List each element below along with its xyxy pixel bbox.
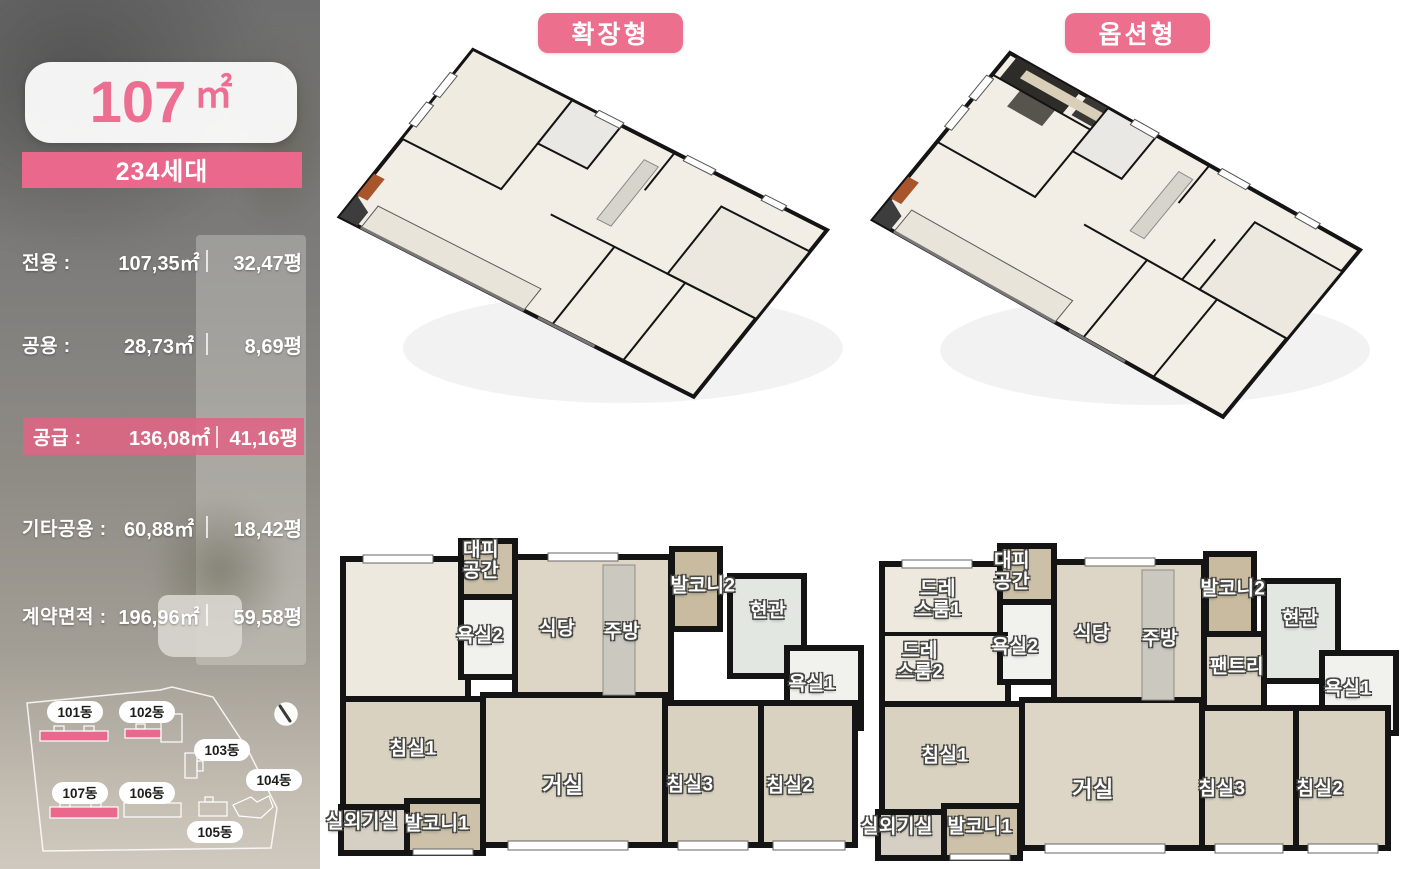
window: [950, 854, 1010, 860]
floorplan-option-3d: [865, 45, 1404, 445]
building-105: [199, 797, 227, 816]
spec-sqm: 60,88㎡: [118, 513, 200, 542]
window: [363, 555, 433, 563]
spec-pyeong: 18,42평: [214, 513, 308, 542]
page: 107 ㎡ 234세대 전용 : 107,35㎡ 32,47평 공용 : 28,…: [0, 0, 1404, 869]
room-label-kitchen: 주방: [1142, 630, 1178, 651]
room-upper-left: [343, 559, 468, 699]
room-label-entry: 현관: [750, 602, 786, 623]
divider: [206, 333, 208, 355]
room-label-bed3: 침실3: [1198, 780, 1245, 801]
floorplan-option-2d: 드레 스룸1 대피 공간 발코니2 현관 드레 스룸2 욕실2 식당 주방 팬트…: [860, 538, 1404, 863]
sidebar: 107 ㎡ 234세대 전용 : 107,35㎡ 32,47평 공용 : 28,…: [0, 0, 320, 869]
room-label-dining: 식당: [1074, 625, 1110, 646]
building-107: [50, 802, 118, 818]
svg-text:105동: 105동: [198, 825, 233, 840]
spec-row-common: 공용 : 28,73㎡ 8,69평: [12, 325, 308, 363]
building-label-101: 101동: [47, 701, 103, 723]
window: [902, 560, 972, 568]
area-title-card: 107 ㎡: [25, 62, 297, 143]
window: [1308, 844, 1378, 853]
spec-row-other-common: 기타공용 : 60,88㎡ 18,42평: [12, 508, 308, 546]
room-label-bed3: 침실3: [666, 776, 713, 797]
spec-row-supply: 공급 : 136,08㎡ 41,16평: [23, 418, 304, 455]
floorplan-extended-2d: 대피 공간 발코니2 현관 욕실2 식당 주방 욕실1 침실1 거실 침실3 침…: [333, 535, 870, 860]
room-label-bed2: 침실2: [1296, 780, 1343, 801]
room-label-balcony1: 발코니1: [404, 815, 469, 836]
room-label-bath1: 욕실1: [1324, 680, 1371, 701]
spec-row-contract-area: 계약면적 : 196,96㎡ 59,58평: [12, 596, 308, 634]
room-label-entry: 현관: [1282, 610, 1318, 631]
room-label-escape: 대피 공간: [454, 540, 508, 581]
room-label-bath2: 욕실2: [456, 627, 503, 648]
divider: [206, 516, 208, 538]
window: [548, 553, 618, 561]
room-label-escape: 대피 공간: [985, 551, 1039, 592]
compass-icon: [275, 703, 297, 725]
room-living: [1022, 700, 1202, 848]
room-label-balcony1: 발코니1: [947, 818, 1012, 839]
area-number: 107: [90, 74, 187, 132]
window: [1215, 844, 1283, 853]
svg-text:102동: 102동: [130, 705, 165, 720]
divider: [206, 250, 208, 272]
floorplan-extended-3d: [333, 38, 873, 443]
spec-label: 전용 :: [12, 248, 118, 275]
room-label-kitchen: 주방: [604, 623, 640, 644]
room-label-dining: 식당: [539, 620, 575, 641]
building-101: [40, 726, 108, 741]
spec-label: 기타공용 :: [12, 514, 118, 541]
divider: [216, 426, 218, 448]
room-label-balcony2: 발코니2: [670, 577, 735, 598]
spec-pyeong: 59,58평: [214, 601, 308, 630]
spec-sqm: 28,73㎡: [118, 330, 200, 359]
window: [1045, 844, 1165, 853]
room-label-bath1: 욕실1: [788, 675, 835, 696]
window: [773, 841, 845, 850]
area-unit: ㎡: [194, 76, 232, 114]
building-label-106: 106동: [119, 782, 175, 804]
building-label-105: 105동: [187, 821, 243, 843]
window: [678, 841, 748, 850]
room-label-living: 거실: [542, 774, 583, 798]
room-label-pantry: 팬트리: [1210, 658, 1264, 679]
building-label-103: 103동: [194, 739, 250, 761]
svg-text:103동: 103동: [205, 743, 240, 758]
building-label-104: 104동: [246, 769, 302, 791]
window: [1085, 558, 1155, 566]
spec-pyeong: 41,16평: [224, 422, 304, 451]
room-label-bed1: 침실1: [921, 747, 968, 768]
room-label-bed2: 침실2: [766, 777, 813, 798]
room-label-outdoor: 실외기실: [326, 813, 398, 834]
spec-sqm: 107,35㎡: [118, 247, 200, 276]
building-104: [233, 796, 273, 818]
spec-pyeong: 32,47평: [214, 247, 308, 276]
building-label-102: 102동: [119, 701, 175, 723]
svg-text:101동: 101동: [58, 705, 93, 720]
spec-label: 공급 :: [23, 423, 129, 450]
units-badge: 234세대: [22, 152, 302, 188]
svg-text:104동: 104동: [257, 773, 292, 788]
svg-text:106동: 106동: [130, 786, 165, 801]
room-label-bed1: 침실1: [389, 740, 436, 761]
spec-pyeong: 8,69평: [214, 330, 308, 359]
spec-sqm: 136,08㎡: [129, 422, 210, 451]
spec-label: 계약면적 :: [12, 602, 118, 629]
floorplan-drawing: [333, 535, 870, 860]
room-label-outdoor: 실외기실: [861, 818, 933, 839]
spec-label: 공용 :: [12, 331, 118, 358]
spec-row-exclusive: 전용 : 107,35㎡ 32,47평: [12, 242, 308, 280]
room-label-dressroom1: 드레 스룸1: [911, 579, 965, 620]
divider: [206, 604, 208, 626]
room-label-bath2: 욕실2: [991, 638, 1038, 659]
svg-text:107동: 107동: [63, 786, 98, 801]
site-plan: 101동 102동 103동 104동 105동 106동: [0, 650, 320, 869]
window: [413, 849, 473, 855]
room-bed2: [761, 703, 855, 845]
room-label-balcony2: 발코니2: [1200, 580, 1265, 601]
room-label-dressroom2: 드레 스룸2: [893, 641, 947, 682]
room-label-living: 거실: [1072, 778, 1113, 802]
window: [508, 841, 628, 850]
room-living: [483, 695, 665, 845]
spec-sqm: 196,96㎡: [118, 601, 200, 630]
building-label-107: 107동: [52, 782, 108, 804]
